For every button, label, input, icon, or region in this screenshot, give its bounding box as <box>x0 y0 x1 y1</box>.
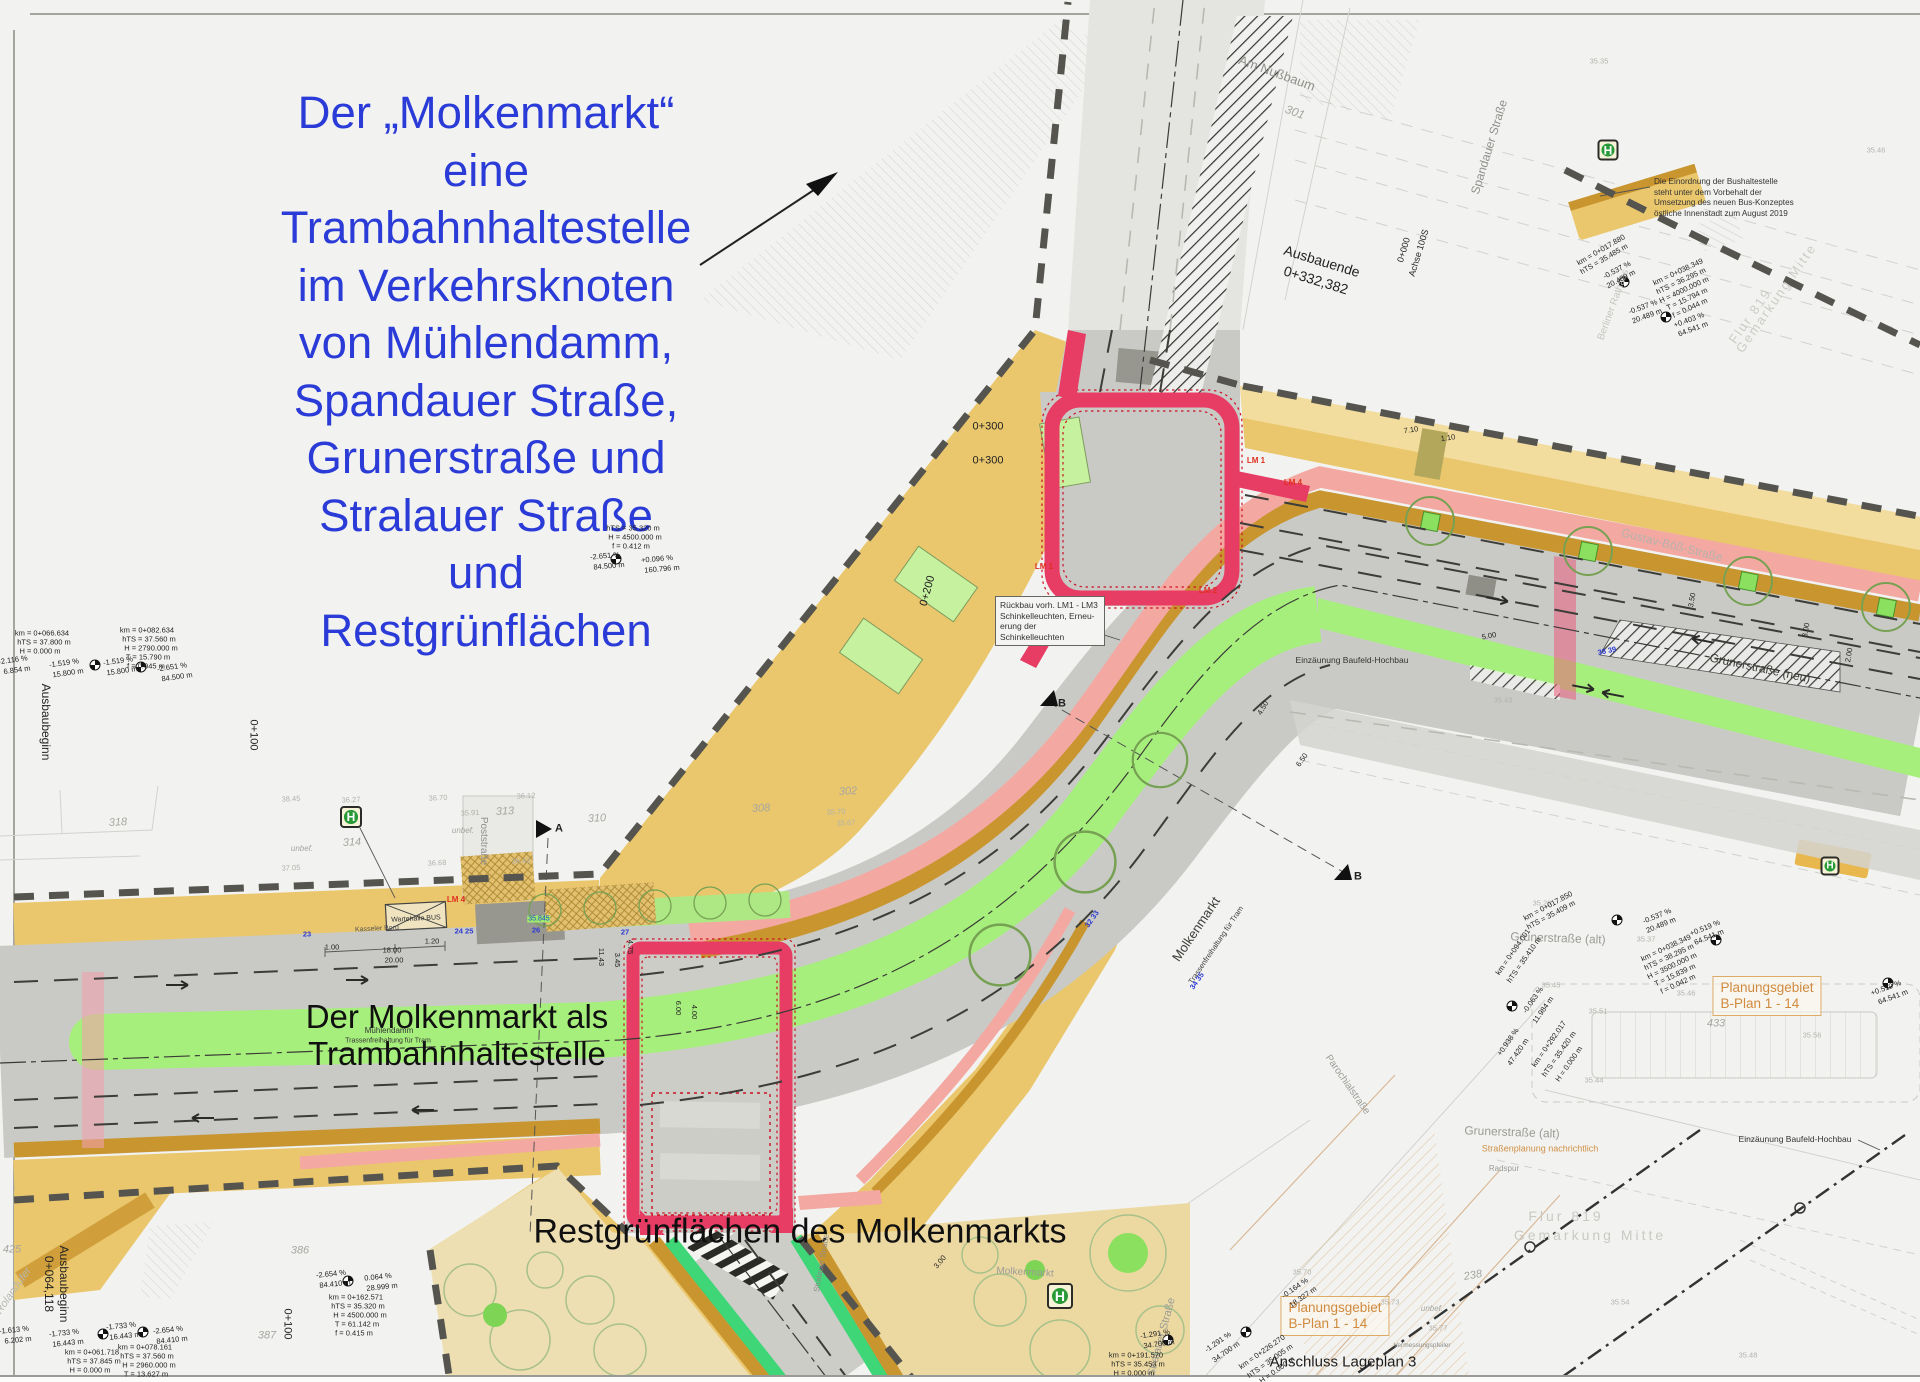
parcel-number: 386 <box>291 1246 309 1257</box>
spot-height: 35.48 <box>1739 1351 1758 1359</box>
station-label: 0+064,118 <box>43 1256 55 1312</box>
dimension-label: 1.00 <box>325 943 340 951</box>
cadastre-label: Flur 819 <box>1528 1209 1603 1223</box>
gradient-annotation: f = 0.415 m <box>335 1329 373 1337</box>
light-mast-label: LM 1 <box>1247 457 1265 465</box>
spot-height: 35.51 <box>1589 1007 1608 1015</box>
spot-height: 35.35 <box>1590 57 1609 65</box>
gradient-annotation: hTS = 37.845 m <box>67 1357 121 1365</box>
title-line: eine <box>106 142 866 200</box>
mast-number: 23 <box>303 930 311 938</box>
gradient-annotation: hTS = 35.320 m <box>331 1302 385 1310</box>
planning-area-line: B-Plan 1 - 14 <box>1288 1316 1381 1332</box>
map-label: Straßenplanung nachrichtlich <box>1482 1145 1599 1154</box>
title-line: Trambahnhaltestelle <box>106 199 866 257</box>
spot-height: 37.05 <box>281 864 300 872</box>
spot-height: 38.45 <box>281 795 300 803</box>
mast-number: 26 <box>532 926 540 934</box>
dimension-label: 4.75 <box>626 940 634 955</box>
mast-number: 24 25 <box>455 927 474 935</box>
gradient-annotation: hTS = 35.453 m <box>1111 1360 1165 1368</box>
parcel-number: 302 <box>839 786 858 798</box>
lighting-note: Rückbau vorh. LM1 - LM3 Schinkelleuchten… <box>995 596 1105 646</box>
gradient-annotation: H = 0.000 m <box>69 1366 110 1374</box>
map-label: Einzäunung Baufeld-Hochbau <box>1739 1135 1852 1144</box>
gradient-annotation: f = 0.412 m <box>612 542 650 550</box>
title-line: im Verkehrsknoten <box>106 257 866 315</box>
dimension-label: 20.00 <box>385 956 404 964</box>
gradient-annotation: hTS = 37.560 m <box>120 1352 174 1360</box>
spot-height: 35.45 <box>1542 981 1561 989</box>
section-marker: B <box>1058 699 1066 710</box>
gradient-annotation: H = 4500.000 m <box>608 533 662 541</box>
gradient-annotation: H = 0.000 m <box>1113 1369 1154 1377</box>
gradient-annotation: km = 0+066.634 <box>15 629 69 637</box>
map-label: unbef. <box>452 827 474 835</box>
spot-height: 35.44 <box>1585 1076 1604 1084</box>
title-line: Restgrünflächen <box>106 602 866 660</box>
gradient-annotation: hTS = 35.320 m <box>606 524 660 532</box>
street-label: Grunerstraße (alt) <box>1464 1124 1560 1139</box>
map-label: Radspur <box>1489 1165 1519 1173</box>
dimension-label: 11.43 <box>597 948 605 966</box>
spot-height: 35.56 <box>1803 1031 1822 1039</box>
cadastre-label: Gemarkung Mitte <box>1514 1228 1666 1242</box>
spot-height: 35.70 <box>826 808 845 816</box>
parking-grid <box>1592 1012 1877 1078</box>
planning-area-line: B-Plan 1 - 14 <box>1720 996 1813 1012</box>
page-title: Der „Molkenmarkt“ eine Trambahnhaltestel… <box>106 84 866 659</box>
site-plan-sheet: Der „Molkenmarkt“ eine Trambahnhaltestel… <box>0 0 1920 1382</box>
spot-height: 35.67 <box>836 819 855 827</box>
map-label: unbef. <box>291 845 313 853</box>
section-marker: B <box>1354 872 1362 883</box>
title-line: Spandauer Straße, <box>106 372 866 430</box>
dimension-label: 1.20 <box>425 937 440 945</box>
dimension-label: 18.00 <box>383 946 402 954</box>
spot-height: 36.70 <box>428 794 447 802</box>
note-line: Die Einordnung der Bushaltestelle <box>1654 177 1804 188</box>
dimension-label: 7.10 <box>1403 425 1419 434</box>
bus-stop-icon: H <box>1598 140 1619 161</box>
light-mast-label: LM 2 <box>1199 587 1217 595</box>
station-label: 0+300 <box>973 422 1004 433</box>
parcel-number: 433 <box>1707 1019 1725 1030</box>
parcel-number: 425 <box>3 1245 21 1256</box>
bus-stop-icon: H <box>340 806 362 828</box>
bus-stop-note: Die Einordnung der Bushaltestelle steht … <box>1654 177 1804 219</box>
title-line: Grunerstraße und <box>106 429 866 487</box>
parcel-number: 310 <box>588 813 607 825</box>
dimension-label: 1.10 <box>1440 433 1456 442</box>
spot-height: 35.845 <box>527 916 550 923</box>
spot-height: 35.77 <box>1429 1324 1448 1332</box>
station-label: Ausbaubeginn <box>58 1246 70 1323</box>
tram-stop-annotation: Der Molkenmarkt als Trambahnhaltestelle <box>306 998 609 1072</box>
title-line: Stralauer Straße <box>106 487 866 545</box>
spot-height: 36.27 <box>341 796 360 804</box>
bus-stop-h-glyph: H <box>1602 144 1615 157</box>
light-mast-label: LM 4 <box>447 896 465 904</box>
spot-height: 35.91 <box>460 809 479 817</box>
spot-height: 35.37 <box>1637 935 1656 943</box>
bus-stop-h-glyph: H <box>344 810 357 823</box>
bus-stop-icon: H <box>1821 857 1840 876</box>
parcel-number: 313 <box>496 806 515 818</box>
mast-number: 27 <box>621 928 629 936</box>
bus-stop-h-glyph: H <box>1052 1288 1068 1304</box>
spot-height: 35.73 <box>1381 1298 1400 1306</box>
title-line: und <box>106 544 866 602</box>
gradient-annotation: T = 13.627 m <box>124 1370 168 1378</box>
gradient-annotation: hTS = 37.800 m <box>17 638 71 646</box>
gradient-annotation: km = 0+191.570 <box>1109 1351 1163 1359</box>
spot-height: 35.54 <box>1611 1298 1630 1306</box>
note-line: erung der Schinkelleuchten <box>1000 621 1100 642</box>
dimension-label: 6.00 <box>674 1001 682 1016</box>
gradient-annotation: km = 0+082.634 <box>120 626 174 634</box>
station-label: Ausbaubeginn <box>40 684 52 761</box>
station-label: 0+100 <box>282 1309 293 1340</box>
spot-height: 35.46 <box>1867 146 1886 154</box>
dimension-label: 3.45 <box>613 953 621 968</box>
street-label: Poststraße <box>478 817 488 865</box>
gradient-annotation: hTS = 37.560 m <box>122 635 176 643</box>
gradient-annotation: T = 61.142 m <box>335 1320 379 1328</box>
map-label: Trassenfreihaltung für Tram <box>345 1038 431 1045</box>
planning-area-box: Planungsgebiet B-Plan 1 - 14 <box>1712 976 1821 1016</box>
station-label: 0+100 <box>248 720 259 751</box>
note-line: Rückbau vorh. LM1 - LM3 <box>1000 600 1100 611</box>
sheet-margin <box>0 1377 1920 1382</box>
parcel-number: 308 <box>752 803 771 815</box>
spot-height: 35.46 <box>1677 989 1696 997</box>
light-mast-label: LM 4 <box>1284 479 1302 487</box>
gradient-annotation: H = 2790.000 m <box>124 644 178 652</box>
planning-area-line: Planungsgebiet <box>1720 980 1813 996</box>
title-line: Der „Molkenmarkt“ <box>106 84 866 142</box>
gradient-annotation: H = 4500.000 m <box>333 1311 387 1319</box>
rest-green-annotation: Restgrünflächen des Molkenmarkts <box>534 1213 1067 1252</box>
note-line: Schinkelleuchten, Erneu- <box>1000 611 1100 622</box>
map-label: Vermessungspfeiler <box>1393 1343 1450 1350</box>
title-line: von Mühlendamm, <box>106 314 866 372</box>
spot-height: 36.12 <box>516 792 535 800</box>
gradient-annotation: km = 0+061.718 <box>65 1348 119 1356</box>
bus-stop-h-glyph: H <box>1824 860 1835 871</box>
gradient-annotation: km = 0+162.571 <box>329 1293 383 1301</box>
light-mast-label: LM 1 <box>1035 563 1053 571</box>
tram-stop-annotation-line: Der Molkenmarkt als <box>306 998 609 1035</box>
bus-stop-icon: H <box>1047 1283 1073 1309</box>
note-line: östliche Innenstadt zum August 2019 <box>1654 209 1804 220</box>
spot-height: 35.43 <box>1494 696 1513 704</box>
dimension-label: 4.00 <box>690 1005 698 1020</box>
map-label: unbef. <box>1421 1305 1443 1313</box>
street-label: Mühlendamm <box>365 1027 413 1035</box>
spot-height: 36.68 <box>427 859 446 867</box>
parcel-number: 387 <box>258 1331 276 1342</box>
spot-height: 35.70 <box>1293 1268 1312 1276</box>
section-marker: A <box>555 824 563 835</box>
station-label: 0+300 <box>973 456 1004 467</box>
map-label: Einzäunung Baufeld-Hochbau <box>1296 656 1409 665</box>
note-line: steht unter dem Vorbehalt der <box>1654 188 1804 199</box>
gradient-annotation: H = 2960.000 m <box>122 1361 176 1369</box>
note-line: Umsetzung des neuen Bus-Konzeptes <box>1654 198 1804 209</box>
spot-height: 36.42 <box>511 857 530 865</box>
parcel-number: 314 <box>343 837 362 849</box>
parcel-number: 318 <box>109 817 128 829</box>
